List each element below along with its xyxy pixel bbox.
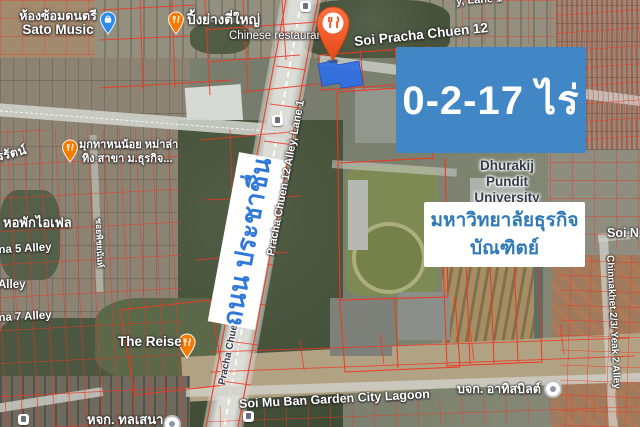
satellite-left-trees xyxy=(0,190,60,280)
satellite-map-canvas[interactable]: ถนน ประชาชื่น 0-2-17 ไร่ มหาวิทยาลัยธุรก… xyxy=(0,0,640,427)
satellite-campus-bldg-south2 xyxy=(398,292,450,340)
land-area-annotation: 0-2-17 ไร่ xyxy=(396,47,586,153)
satellite-campus-bldg-south1 xyxy=(330,298,392,356)
university-poi-label-line2[interactable]: Pundit xyxy=(470,175,544,190)
hjk-poi-dot[interactable] xyxy=(163,415,181,427)
street-lana-5-alley: ana 5 Alley xyxy=(0,241,52,257)
street-soi-mu-ban-garden-city-lagoon: Soi Mu Ban Garden City Lagoon xyxy=(239,388,430,412)
satellite-white-building xyxy=(185,84,244,128)
street-top-edge-partial: y, Lane 1 xyxy=(456,0,503,8)
street-lana-7-alley: ana 7 Alley xyxy=(0,309,52,325)
satellite-running-track xyxy=(352,222,426,294)
street-soi-n-partial: Soi N xyxy=(607,227,639,241)
road-topleft xyxy=(0,103,295,138)
grill-restaurant-label[interactable]: ปิ้งย่างตี่ใหญ่ xyxy=(187,13,260,28)
street-pracha-chuen-road: Pracha Chuen xyxy=(217,318,242,386)
satellite-grandstand xyxy=(348,180,368,250)
satellite-canal xyxy=(534,266,543,366)
property-location-pin[interactable] xyxy=(314,6,352,69)
eiffel-dorm-label[interactable]: หอพักไอเฟล xyxy=(3,216,72,230)
university-annotation-line2: บัณฑิตย์ xyxy=(470,235,539,263)
land-area-text: 0-2-17 ไร่ xyxy=(402,68,579,132)
mala-restaurant-pin[interactable] xyxy=(61,139,79,163)
street-soi-pracha-chuen-12: Soi Pracha Chuen 12 xyxy=(354,21,489,50)
hjk-company-label[interactable]: หจก. ทลเสนา xyxy=(87,413,163,427)
road-campus-access xyxy=(332,160,457,177)
satellite-farmland xyxy=(442,264,536,366)
university-annotation: มหาวิทยาลัยธุรกิจ บัณฑิตย์ xyxy=(424,202,585,267)
athit-company-label[interactable]: บจก. อาทิสบิลต์ xyxy=(457,383,541,397)
satellite-right-village xyxy=(552,255,640,427)
sato-music-label-en[interactable]: Sato Music xyxy=(8,23,108,38)
the-reise-label[interactable]: The Reise xyxy=(118,335,182,350)
street-phetcharat: เพชรรัตน์ xyxy=(0,144,28,170)
satellite-left-trees2 xyxy=(0,318,130,390)
university-annotation-line1: มหาวิทยาลัยธุรกิจ xyxy=(431,207,579,235)
transit-station-icon[interactable] xyxy=(243,411,254,422)
grill-restaurant-pin[interactable] xyxy=(167,11,185,35)
transit-station-icon[interactable] xyxy=(18,414,29,425)
street-alley-partial: Alley xyxy=(0,279,26,292)
university-poi-label-line1[interactable]: Dhurakij xyxy=(470,159,544,174)
transit-station-icon[interactable] xyxy=(300,1,311,12)
road-bottomleft xyxy=(0,387,103,413)
street-chinnakhet-alley: Chinnakhet 2/3/ Yeak 2 Alley xyxy=(604,255,622,389)
chinese-restaurant-category: Chinese restaurant xyxy=(229,30,326,43)
athit-poi-dot[interactable] xyxy=(544,380,562,398)
street-soi-small-vertical: ซอยพิชยนันท์ xyxy=(93,218,104,268)
transit-station-icon[interactable] xyxy=(272,115,283,126)
mala-restaurant-label-line2[interactable]: ทิง สาขา ม.ธุรกิจ... xyxy=(82,153,173,165)
mala-restaurant-label-line1[interactable]: มุกทาหนน้อย หม่าล่า xyxy=(79,139,178,151)
